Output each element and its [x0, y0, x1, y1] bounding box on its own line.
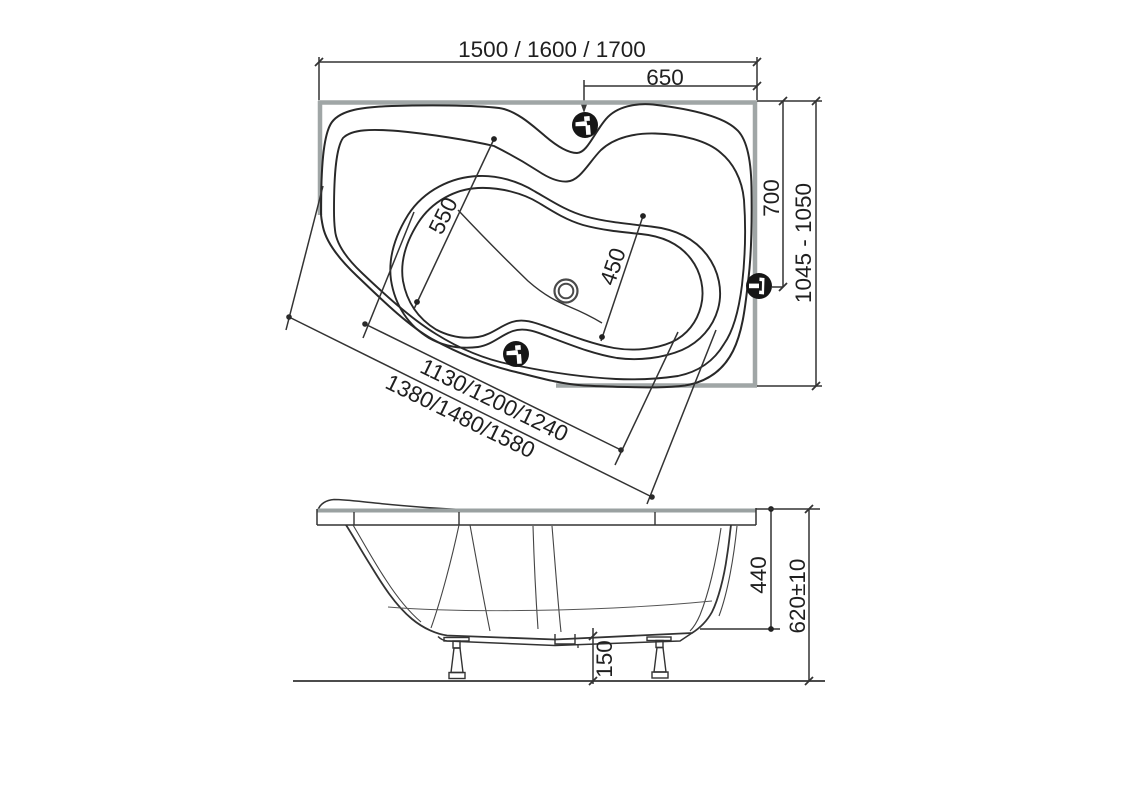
svg-text:620±10: 620±10 [785, 559, 810, 634]
svg-text:440: 440 [746, 556, 771, 594]
svg-text:650: 650 [646, 65, 684, 90]
svg-text:700: 700 [759, 179, 784, 217]
svg-text:1045 - 1050: 1045 - 1050 [791, 183, 816, 303]
svg-text:1500 / 1600 / 1700: 1500 / 1600 / 1700 [458, 37, 646, 62]
svg-text:150: 150 [592, 640, 617, 678]
